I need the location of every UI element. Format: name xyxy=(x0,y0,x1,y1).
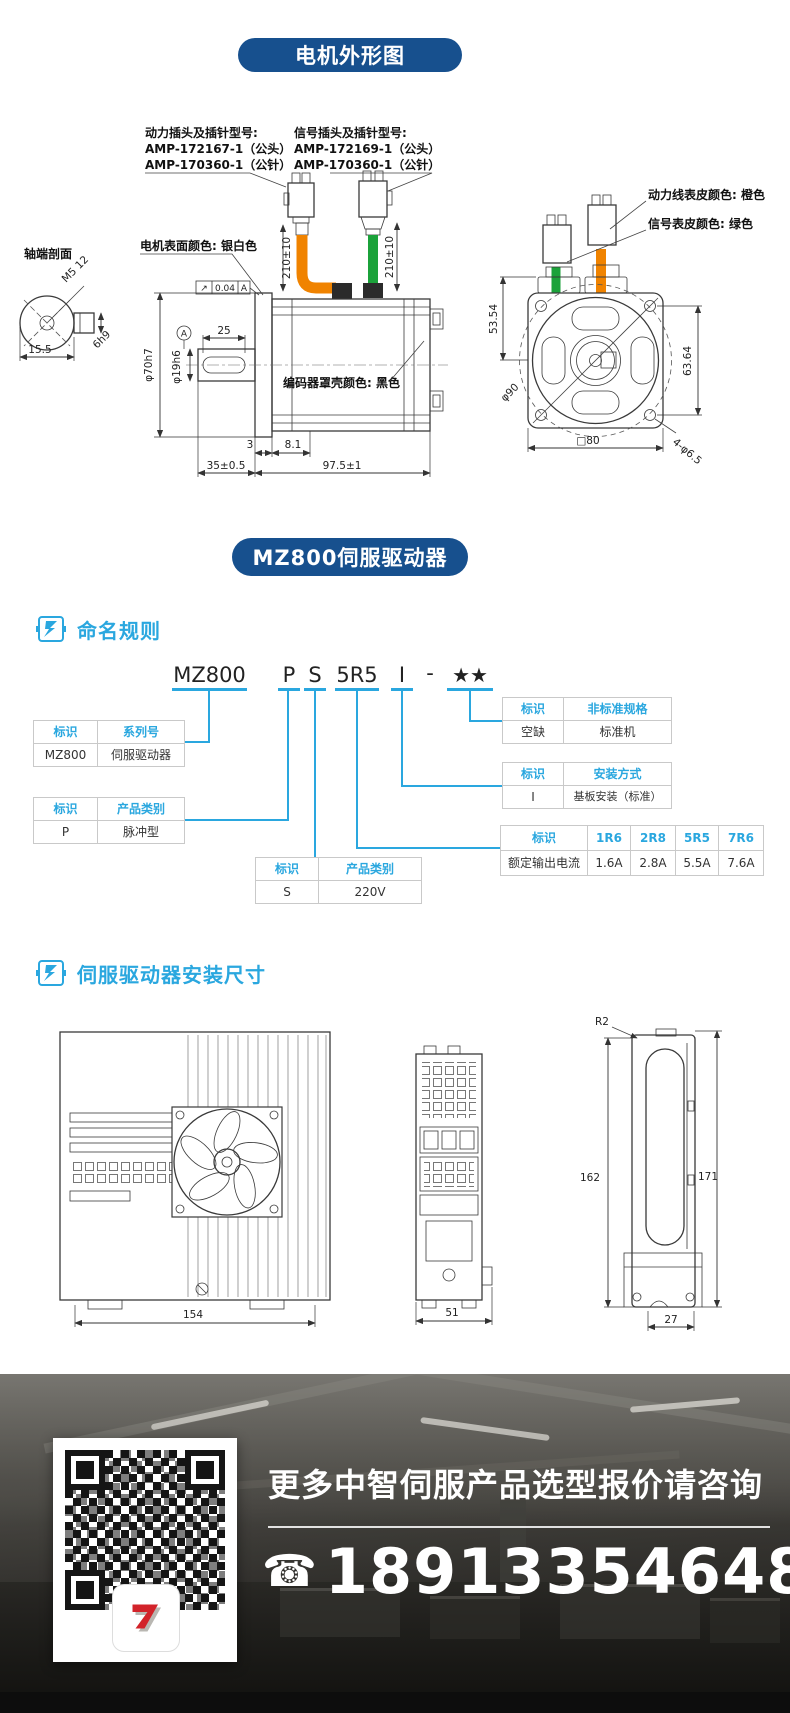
line-series-h xyxy=(183,741,210,743)
table-cell: 2.8A xyxy=(631,851,676,875)
install-section-header: 伺服驱动器安装尺寸 xyxy=(36,958,266,988)
qr-finder-icon xyxy=(185,1450,225,1490)
signal-plug-label-1: 信号插头及插针型号: xyxy=(294,125,407,140)
nonstandard-table: 标识 非标准规格 空缺 标准机 xyxy=(502,697,672,744)
model-part-mount: I xyxy=(391,663,413,687)
encoder-color-label: 编码器罩壳颜色: 黑色 xyxy=(282,375,400,390)
rated-current-table: 标识 1R6 2R8 5R5 7R6 额定输出电流 1.6A 2.8A 5.5A… xyxy=(500,825,764,876)
shaft-dia-dim: φ19h6 xyxy=(171,350,183,384)
inner-height-dim: 162 xyxy=(580,1172,600,1184)
runout-value: 0.04 xyxy=(215,284,235,294)
power-plug-label-2: AMP-172167-1（公头） xyxy=(145,141,291,156)
square-dim: □80 xyxy=(576,435,599,447)
table-header-cell: 5R5 xyxy=(676,826,719,851)
line-stars-h xyxy=(469,720,502,722)
table-header-cell: 标识 xyxy=(256,858,319,881)
hole-pitch-dim: 63.64 xyxy=(682,346,694,376)
table-cell: 伺服驱动器 xyxy=(98,744,184,766)
runout-datum: A xyxy=(241,284,248,294)
signal-plug-label-3: AMP-170360-1（公针） xyxy=(294,157,440,172)
line-type-v xyxy=(287,691,289,821)
power-cable xyxy=(302,235,336,288)
contact-divider xyxy=(268,1526,770,1528)
table-cell: S xyxy=(256,881,319,903)
underline-type xyxy=(278,688,300,691)
shaft-section-label: 轴端剖面 xyxy=(24,246,72,261)
brand-logo-icon xyxy=(36,958,66,988)
brand-logo-badge xyxy=(112,1584,180,1652)
signal-sheath-label: 信号表皮颜色: 绿色 xyxy=(648,216,753,231)
footer-bar xyxy=(0,1692,790,1713)
line-type-h xyxy=(183,819,289,821)
line-current-h xyxy=(356,847,500,849)
total-length-dim: 97.5±1 xyxy=(323,460,362,472)
table-cell: 1.6A xyxy=(588,851,631,875)
brand-logo-icon xyxy=(36,614,66,644)
table-header-cell: 非标准规格 xyxy=(564,698,671,721)
model-part-dash: - xyxy=(420,661,440,685)
cable-length-dim-1: 210±10 xyxy=(281,237,293,279)
table-header-cell: 标识 xyxy=(34,798,98,821)
power-plug-label-3: AMP-170360-1（公针） xyxy=(145,157,291,172)
product-type-table: 标识 产品类别 P 脉冲型 xyxy=(33,797,185,844)
table-header-cell: 安装方式 xyxy=(564,763,671,786)
driver-depth-dim: 51 xyxy=(445,1307,458,1319)
motor-outline-badge: 电机外形图 xyxy=(238,38,462,72)
line-current-v xyxy=(356,691,358,849)
phone-row: ☎ 18913354648 xyxy=(262,1538,790,1606)
power-sheath-label: 动力线表皮颜色: 橙色 xyxy=(648,187,765,202)
runout-symbol: ↗ xyxy=(200,284,208,294)
shaft-155-dim: 15.5 xyxy=(28,344,51,356)
foot-dim: 27 xyxy=(664,1314,677,1326)
table-header-cell: 标识 xyxy=(503,763,564,786)
d81-dim: 8.1 xyxy=(285,439,302,451)
gap-dim: 3 xyxy=(247,439,254,451)
table-cell: 额定输出电流 xyxy=(501,851,588,875)
power-plug-label-1: 动力插头及插针型号: xyxy=(145,125,258,140)
series-table: 标识 系列号 MZ800 伺服驱动器 xyxy=(33,720,185,767)
table-cell: 基板安装（标准） xyxy=(564,786,671,808)
table-header-cell: 7R6 xyxy=(719,826,763,851)
line-mount-v xyxy=(401,691,403,787)
phone-number: 18913354648 xyxy=(325,1538,790,1606)
signal-plug-label-2: AMP-172169-1（公头） xyxy=(294,141,440,156)
signal-cable-gland xyxy=(363,283,383,298)
table-cell: 空缺 xyxy=(503,721,564,743)
model-part-series: MZ800 xyxy=(172,663,247,687)
line-series-v xyxy=(208,691,210,743)
table-header-cell: 产品类别 xyxy=(98,798,184,821)
outer-height-dim: 171 xyxy=(698,1171,718,1183)
bolt-circle-dim: φ90 xyxy=(499,381,522,404)
contact-headline: 更多中智伺服产品选型报价请咨询 xyxy=(268,1460,768,1506)
table-header-cell: 2R8 xyxy=(631,826,676,851)
driver-width-dim: 154 xyxy=(183,1309,203,1321)
table-cell: P xyxy=(34,821,98,843)
holes-dim: 4-φ6.5 xyxy=(670,436,704,467)
voltage-table: 标识 产品类别 S 220V xyxy=(255,857,422,904)
flange-top-dim: 53.54 xyxy=(488,304,500,334)
cable-length-dim-2: 210±10 xyxy=(384,236,396,278)
line-voltage-v xyxy=(314,691,316,857)
table-header-cell: 标识 xyxy=(501,826,588,851)
shaft-section-view: 轴端剖面 M5 12 15.5 6h9 xyxy=(20,246,113,361)
table-cell: 5.5A xyxy=(676,851,719,875)
driver-side-view: 51 xyxy=(416,1046,492,1325)
driver-badge: MZ800伺服驱动器 xyxy=(232,538,468,576)
driver-profile-view: R2 162 171 27 xyxy=(580,1016,722,1331)
qr-finder-icon xyxy=(65,1570,105,1610)
contact-banner: 更多中智伺服产品选型报价请咨询 ☎ 18913354648 xyxy=(0,1374,790,1692)
radius-dim: R2 xyxy=(595,1016,609,1028)
datum-a-label: A xyxy=(181,330,188,340)
install-section-title: 伺服驱动器安装尺寸 xyxy=(77,959,266,988)
phone-icon: ☎ xyxy=(262,1550,317,1594)
table-cell: 220V xyxy=(319,881,421,903)
power-cable-gland xyxy=(332,283,352,299)
table-header-cell: 产品类别 xyxy=(319,858,421,881)
qr-card xyxy=(53,1438,237,1662)
motor-side-view: 动力插头及插针型号: AMP-172167-1（公头） AMP-170360-1… xyxy=(140,125,448,477)
motor-outline-drawing: 轴端剖面 M5 12 15.5 6h9 动力插头及插针型号: AMP-17216… xyxy=(0,95,790,487)
table-cell: I xyxy=(503,786,564,808)
driver-front-view: 154 xyxy=(60,1032,330,1327)
surface-color-label: 电机表面颜色: 银白色 xyxy=(140,238,257,253)
table-cell: 脉冲型 xyxy=(98,821,184,843)
table-cell: 7.6A xyxy=(719,851,763,875)
model-part-current: 5R5 xyxy=(335,663,379,687)
naming-section-title: 命名规则 xyxy=(77,615,161,644)
naming-section-header: 命名规则 xyxy=(36,614,161,644)
table-header-cell: 标识 xyxy=(34,721,98,744)
line-stars-v xyxy=(469,691,471,722)
key-length-dim: 25 xyxy=(217,325,230,337)
model-part-stars: ★★ xyxy=(447,663,493,687)
front-length-dim: 35±0.5 xyxy=(207,460,246,472)
mounting-table: 标识 安装方式 I 基板安装（标准） xyxy=(502,762,672,809)
line-mount-h xyxy=(401,785,502,787)
model-part-voltage: S xyxy=(304,663,326,687)
table-cell: 标准机 xyxy=(564,721,671,743)
model-part-type: P xyxy=(278,663,300,687)
driver-dimension-drawing: 154 51 xyxy=(0,1005,790,1350)
table-header-cell: 标识 xyxy=(503,698,564,721)
motor-front-view: 动力线表皮颜色: 橙色 信号表皮颜色: 绿色 53.54 xyxy=(488,187,765,467)
qr-finder-icon xyxy=(65,1450,105,1490)
product-page: 电机外形图 轴端剖面 M5 12 15.5 6h9 xyxy=(0,0,790,1713)
table-cell: MZ800 xyxy=(34,744,98,766)
table-header-cell: 1R6 xyxy=(588,826,631,851)
pilot-dia-dim: φ70h7 xyxy=(143,348,155,382)
zhizhi-logo-icon xyxy=(122,1594,170,1642)
table-header-cell: 系列号 xyxy=(98,721,184,744)
